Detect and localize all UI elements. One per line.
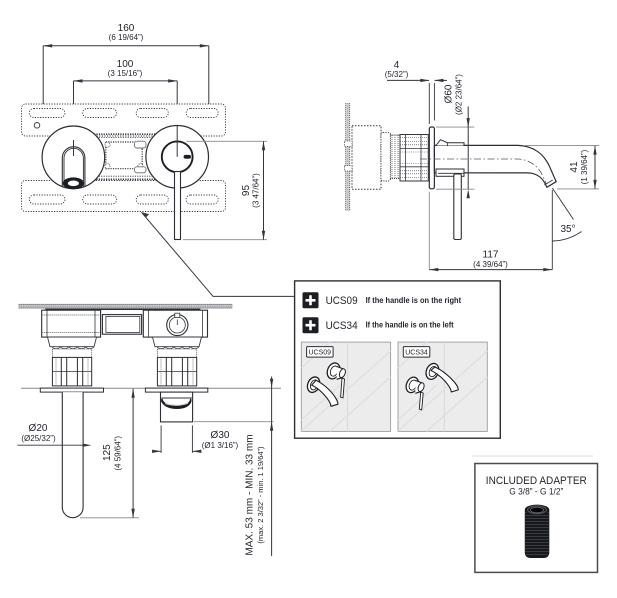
svg-text:UCS34: UCS34 bbox=[405, 350, 428, 357]
svg-text:G 3/8” - G 1/2”: G 3/8” - G 1/2” bbox=[509, 487, 563, 497]
svg-text:INCLUDED ADAPTER: INCLUDED ADAPTER bbox=[486, 475, 587, 487]
svg-text:(Ø25/32”): (Ø25/32”) bbox=[21, 434, 56, 443]
svg-text:(4 59/64”): (4 59/64”) bbox=[113, 436, 122, 471]
svg-text:If the handle is on the left: If the handle is on the left bbox=[366, 321, 454, 330]
svg-text:41: 41 bbox=[569, 161, 580, 173]
svg-text:UCS34: UCS34 bbox=[326, 320, 358, 332]
svg-text:(6 19/64”): (6 19/64”) bbox=[109, 33, 144, 42]
svg-text:(4 39/64”): (4 39/64”) bbox=[473, 260, 508, 269]
svg-text:If the handle is on the right: If the handle is on the right bbox=[366, 296, 462, 305]
svg-text:Ø30: Ø30 bbox=[211, 430, 230, 441]
svg-text:(5/32”): (5/32”) bbox=[385, 70, 409, 79]
svg-text:(3 47/64”): (3 47/64”) bbox=[252, 173, 261, 208]
svg-text:UCS09: UCS09 bbox=[326, 295, 358, 307]
svg-text:(max. 2 3/32” - min. 1 19/64”): (max. 2 3/32” - min. 1 19/64”) bbox=[256, 446, 265, 544]
svg-text:MAX. 53 mm - MIN. 33 mm: MAX. 53 mm - MIN. 33 mm bbox=[245, 434, 256, 555]
svg-text:Ø20: Ø20 bbox=[29, 423, 48, 434]
svg-text:95: 95 bbox=[241, 185, 252, 197]
svg-text:35°: 35° bbox=[560, 224, 575, 235]
svg-text:(3 15/16”): (3 15/16”) bbox=[108, 69, 143, 78]
svg-text:UCS09: UCS09 bbox=[309, 350, 332, 357]
svg-text:(Ø2 23/64”): (Ø2 23/64”) bbox=[455, 74, 464, 115]
svg-text:(Ø1 3/16”): (Ø1 3/16”) bbox=[202, 441, 239, 450]
svg-text:(1 39/64”): (1 39/64”) bbox=[580, 149, 589, 184]
svg-text:125: 125 bbox=[102, 444, 113, 461]
svg-text:Ø60: Ø60 bbox=[444, 84, 455, 103]
